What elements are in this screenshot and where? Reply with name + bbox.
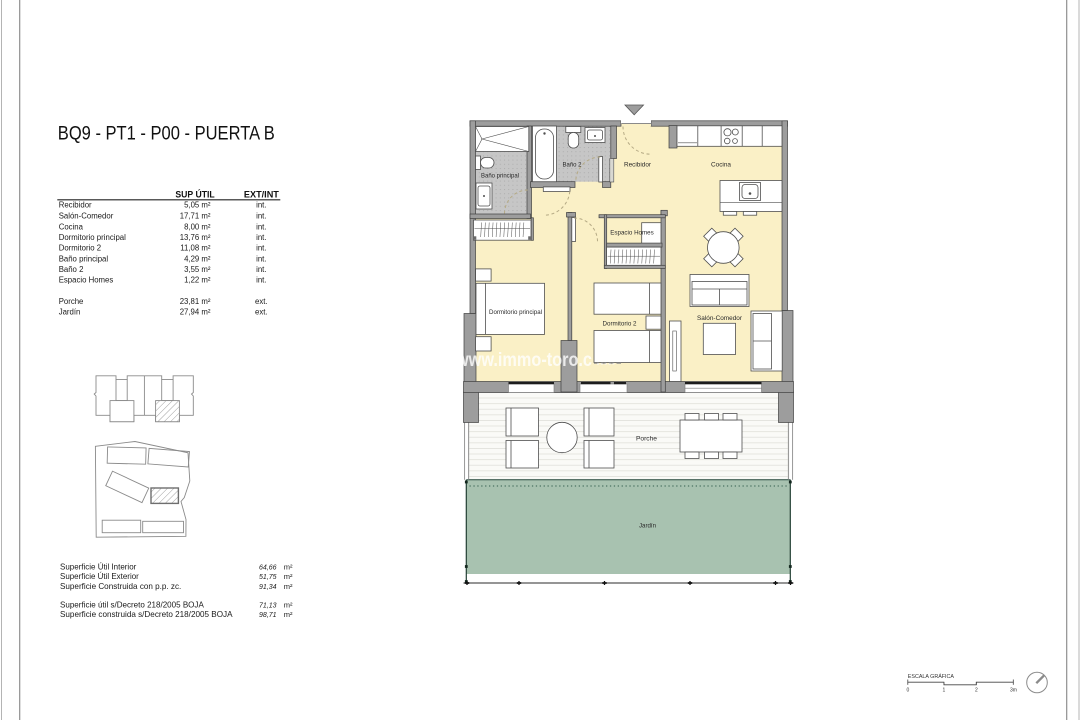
svg-text:64,66: 64,66 <box>259 564 277 571</box>
svg-text:EXT/INT: EXT/INT <box>244 190 279 201</box>
svg-text:int.: int. <box>256 276 266 285</box>
svg-text:ext.: ext. <box>255 297 268 306</box>
svg-text:.....: ..... <box>596 352 615 368</box>
svg-text:SUP ÚTIL: SUP ÚTIL <box>175 189 214 201</box>
svg-text:Espacio Homes: Espacio Homes <box>610 230 654 237</box>
svg-text:m²: m² <box>284 600 293 609</box>
svg-text:Superficie útil s/Decreto 218/: Superficie útil s/Decreto 218/2005 BOJA <box>60 599 204 609</box>
svg-text:Porche: Porche <box>636 436 658 443</box>
svg-text:Baño principal: Baño principal <box>59 254 109 263</box>
svg-text:int.: int. <box>256 233 266 242</box>
svg-text:Baño 2: Baño 2 <box>563 161 583 168</box>
svg-text:Superficie Útil Interior: Superficie Útil Interior <box>60 561 136 571</box>
svg-text:8,00 m²: 8,00 m² <box>184 222 211 231</box>
svg-text:3,55 m²: 3,55 m² <box>184 265 211 274</box>
svg-text:Baño 2: Baño 2 <box>59 265 84 274</box>
svg-text:BQ9 - PT1 - P00 - PUERTA B: BQ9 - PT1 - P00 - PUERTA B <box>58 124 275 145</box>
svg-text:Cocina: Cocina <box>711 162 732 169</box>
svg-text:Dormitorio principal: Dormitorio principal <box>59 233 126 242</box>
svg-text:71,13: 71,13 <box>259 602 277 609</box>
svg-text:Espacio Homes: Espacio Homes <box>59 276 114 285</box>
svg-text:27,94 m²: 27,94 m² <box>180 308 211 317</box>
svg-text:Dormitorio 2: Dormitorio 2 <box>603 321 638 328</box>
svg-text:Baño principal: Baño principal <box>481 173 519 180</box>
svg-text:0: 0 <box>907 688 910 694</box>
svg-text:1,22 m²: 1,22 m² <box>184 276 211 285</box>
svg-text:51,75: 51,75 <box>259 574 277 581</box>
svg-text:ESCALA GRÁFICA: ESCALA GRÁFICA <box>908 673 955 680</box>
svg-text:3m: 3m <box>1010 688 1017 694</box>
svg-text:Jardín: Jardín <box>639 523 657 530</box>
svg-text:Recibidor: Recibidor <box>624 162 651 169</box>
svg-text:int.: int. <box>256 201 266 210</box>
svg-text:m²: m² <box>284 582 293 591</box>
svg-text:Superficie construida s/Decret: Superficie construida s/Decreto 218/2005… <box>60 609 233 619</box>
svg-text:www.immo-toro.c: www.immo-toro.c <box>455 350 592 371</box>
svg-text:int.: int. <box>256 244 266 253</box>
svg-text:int.: int. <box>256 265 266 274</box>
svg-text:11,08 m²: 11,08 m² <box>180 244 211 253</box>
svg-text:1: 1 <box>943 688 946 694</box>
svg-text:ext.: ext. <box>255 308 268 317</box>
svg-text:4,29 m²: 4,29 m² <box>184 254 211 263</box>
svg-text:m²: m² <box>284 572 293 581</box>
svg-text:m²: m² <box>284 562 293 571</box>
svg-text:Dormitorio principal: Dormitorio principal <box>489 309 542 316</box>
svg-text:Superficie Útil Exterior: Superficie Útil Exterior <box>60 571 139 581</box>
svg-text:Salón-Comedor: Salón-Comedor <box>59 212 114 221</box>
svg-text:int.: int. <box>256 222 266 231</box>
svg-text:13,76 m²: 13,76 m² <box>180 233 211 242</box>
svg-text:int.: int. <box>256 254 266 263</box>
svg-text:Recibidor: Recibidor <box>59 201 92 210</box>
svg-text:Jardín: Jardín <box>59 308 81 317</box>
svg-text:23,81 m²: 23,81 m² <box>180 297 211 306</box>
svg-text:17,71 m²: 17,71 m² <box>180 212 211 221</box>
svg-text:int.: int. <box>256 212 266 221</box>
svg-text:Porche: Porche <box>59 297 84 306</box>
svg-text:91,34: 91,34 <box>259 584 277 591</box>
svg-text:Salón-Comedor: Salón-Comedor <box>697 315 742 322</box>
svg-text:98,71: 98,71 <box>259 612 277 619</box>
svg-text:m²: m² <box>284 610 293 619</box>
svg-text:Cocina: Cocina <box>59 222 84 231</box>
svg-text:5,05 m²: 5,05 m² <box>184 201 211 210</box>
svg-text:Superficie Construida con p.p.: Superficie Construida con p.p. zc. <box>60 581 181 591</box>
svg-text:2: 2 <box>975 688 978 694</box>
svg-text:Dormitorio 2: Dormitorio 2 <box>59 244 101 253</box>
